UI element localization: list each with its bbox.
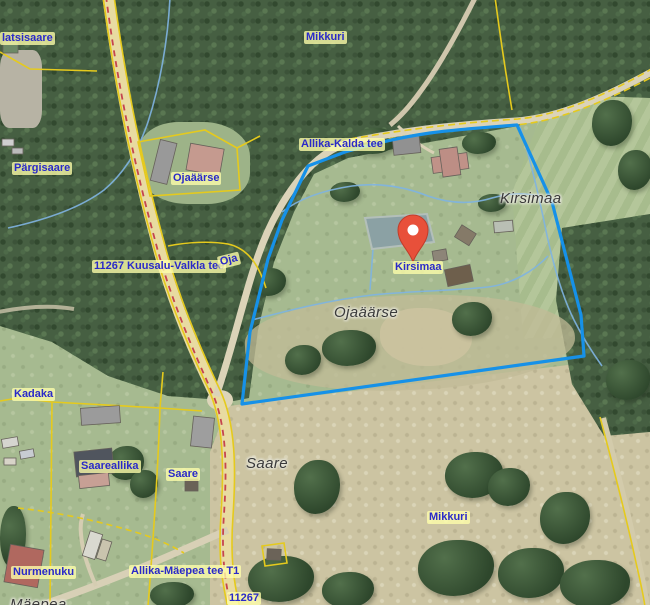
label-road-number-bottom: 11267 <box>227 592 261 605</box>
label-nurmenuku: Nurmenuku <box>11 566 76 579</box>
label-allika-kalda-tee: Allika-Kalda tee <box>299 138 385 151</box>
label-pargisaare: Pärgisaare <box>12 162 72 175</box>
label-maepea-partial: Mäepea <box>10 596 67 605</box>
label-mikkuri-top: Mikkuri <box>304 31 347 44</box>
label-ojaaarse-farm: Ojaäärse <box>171 172 221 185</box>
track-west <box>0 307 74 312</box>
map-vector-layer <box>0 0 650 605</box>
label-platsisaare: latsisaare <box>0 32 55 45</box>
road-dirt-north <box>390 0 476 125</box>
label-allika-maepea-tee: Allika-Mäepea tee T1 <box>129 565 241 578</box>
streams <box>8 0 602 366</box>
buildings <box>1 41 513 588</box>
label-mikkuri-bottom: Mikkuri <box>427 511 470 524</box>
label-kirsimaa-place: Kirsimaa <box>500 190 562 207</box>
marker-pin[interactable] <box>398 215 428 264</box>
label-kuusalu-valkla-tee: 11267 Kuusalu-Valkla tee <box>92 260 226 273</box>
label-kadaka: Kadaka <box>12 388 55 401</box>
label-kirsimaa-marker: Kirsimaa <box>393 261 443 274</box>
map-canvas[interactable]: latsisaare Mikkuri Pärgisaare Ojaäärse A… <box>0 0 650 605</box>
label-saareallika: Saareallika <box>79 460 141 473</box>
label-saare-small: Saare <box>166 468 200 481</box>
label-ojaaarse-place: Ojaäärse <box>334 304 398 321</box>
label-saare-place: Saare <box>246 455 288 472</box>
